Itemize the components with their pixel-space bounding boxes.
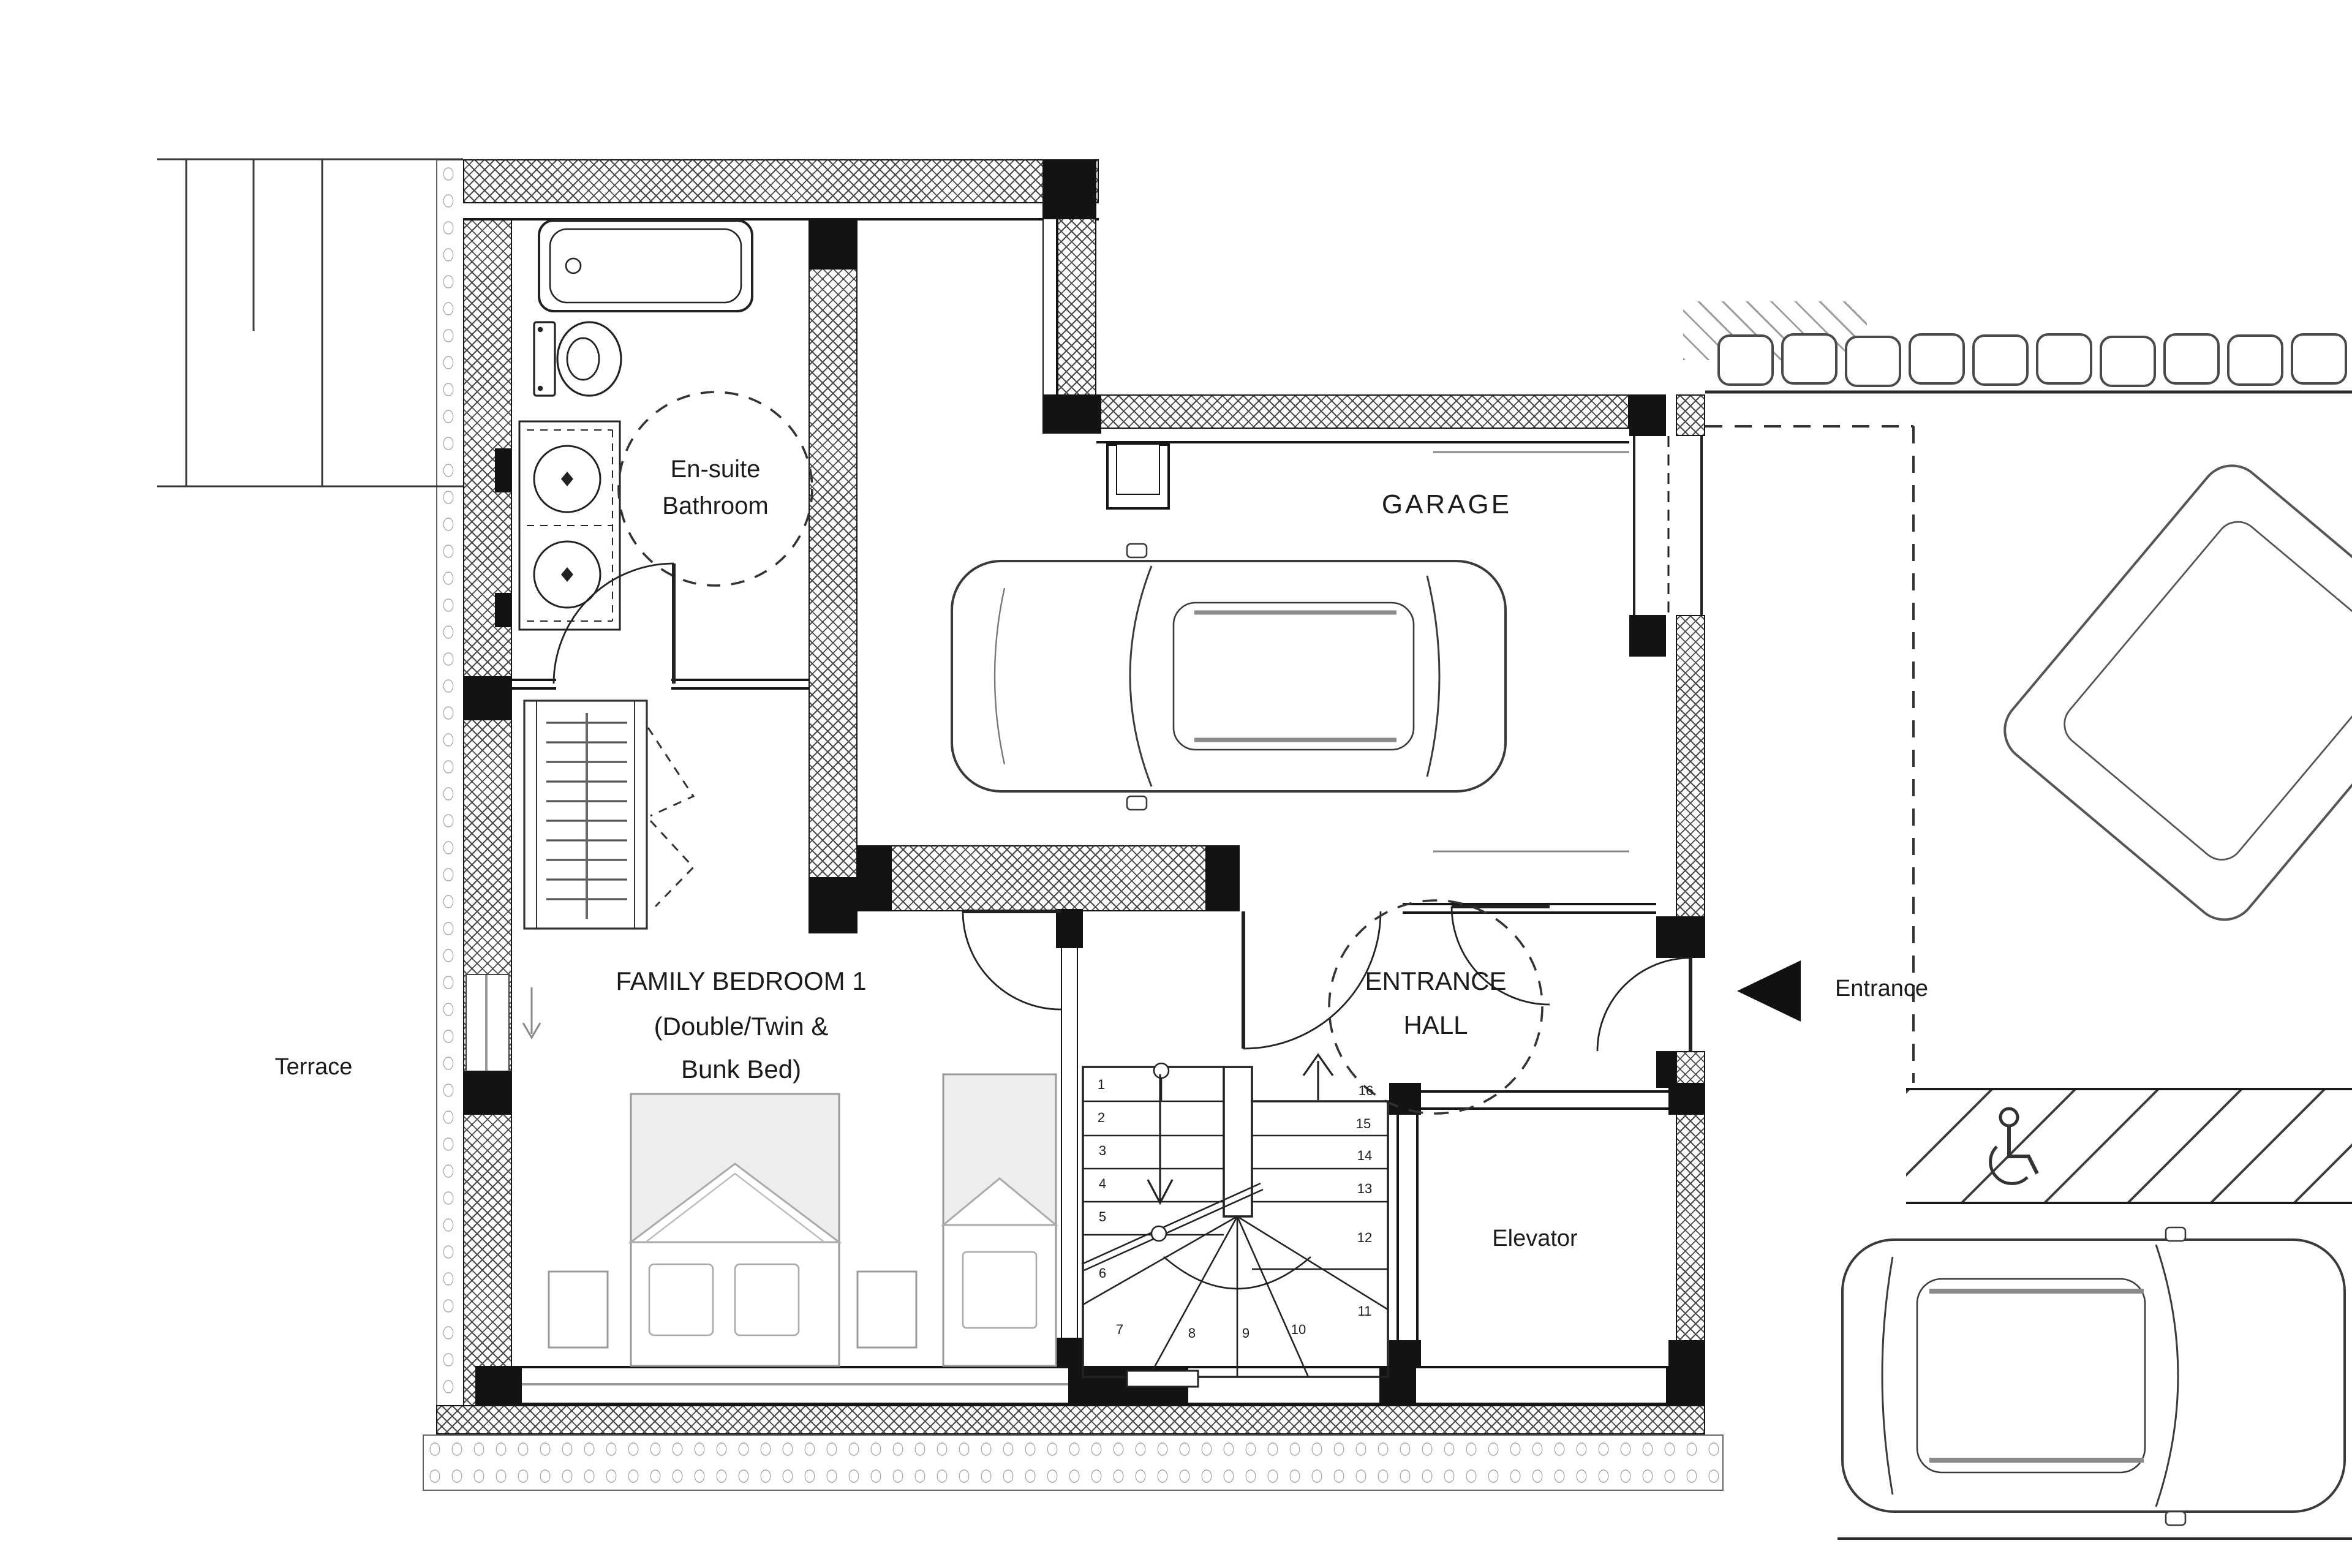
double-bed — [631, 1094, 839, 1366]
stair-number-10: 10 — [1291, 1323, 1306, 1338]
parked-car-angled — [1992, 453, 2352, 933]
garage-label: GARAGE — [1382, 489, 1512, 521]
wheelchair-icon — [1991, 1109, 2037, 1183]
nightstand — [549, 1272, 608, 1347]
stair-number-6: 6 — [1099, 1267, 1106, 1281]
bathtub — [539, 221, 752, 311]
stairs-down-arrow — [1148, 1074, 1172, 1203]
elevator-label: Elevator — [1492, 1226, 1577, 1253]
stair-number-14: 14 — [1357, 1149, 1373, 1164]
stair-number-7: 7 — [1116, 1323, 1123, 1338]
ensuite-label-line2: Bathroom — [662, 493, 768, 521]
toilet — [534, 322, 621, 396]
stair-number-2: 2 — [1098, 1111, 1105, 1126]
stair-number-8: 8 — [1188, 1327, 1196, 1341]
entrance-hall-label-circle — [1329, 900, 1542, 1114]
bedroom-label-line1: FAMILY BEDROOM 1 — [616, 968, 866, 997]
stair-number-3: 3 — [1099, 1144, 1106, 1159]
stair-number-9: 9 — [1242, 1327, 1249, 1341]
garage-door — [1634, 436, 1702, 615]
terrace-label: Terrace — [275, 1055, 353, 1082]
stairs-up-arrow — [1303, 1055, 1333, 1100]
bedroom-label-line2: (Double/Twin & — [654, 1013, 829, 1042]
nightstand — [858, 1272, 916, 1347]
entrance-arrow-icon — [1737, 960, 1801, 1022]
bedroom-door — [963, 911, 1061, 1009]
stair-number-12: 12 — [1357, 1231, 1373, 1246]
garage-car — [952, 544, 1506, 810]
bathroom-door — [554, 563, 674, 684]
bedroom-label-line3: Bunk Bed) — [681, 1056, 801, 1085]
stair-number-13: 13 — [1357, 1182, 1373, 1197]
plan-linework — [0, 0, 2352, 1568]
stair-number-16: 16 — [1359, 1084, 1374, 1099]
stair-number-4: 4 — [1099, 1177, 1106, 1192]
terrace-lines — [157, 159, 463, 486]
vanity-basins — [519, 421, 620, 630]
bedroom-window-arrow — [523, 987, 540, 1038]
entrance-hall-label-line2: HALL — [1403, 1012, 1468, 1041]
entrance-door — [1597, 958, 1691, 1051]
staircase — [1082, 1063, 1388, 1387]
wardrobe — [524, 701, 647, 929]
stair-number-15: 15 — [1356, 1117, 1371, 1132]
entrance-label: Entrance — [1835, 976, 1928, 1003]
stair-number-5: 5 — [1099, 1210, 1106, 1225]
wardrobe-door-swing-dashed — [648, 728, 693, 907]
stair-number-1: 1 — [1098, 1078, 1105, 1093]
ensuite-label-line1: En-suite — [671, 456, 761, 484]
ensuite-label-circle — [619, 392, 812, 586]
entrance-hall-label-line1: ENTRANCE — [1365, 968, 1506, 997]
floor-plan: Terrace En-suite Bathroom GARAGE FAMILY … — [0, 0, 2352, 1568]
parked-car — [1842, 1227, 2345, 1525]
bunk-bed — [943, 1074, 1056, 1366]
stair-number-11: 11 — [1358, 1305, 1372, 1319]
